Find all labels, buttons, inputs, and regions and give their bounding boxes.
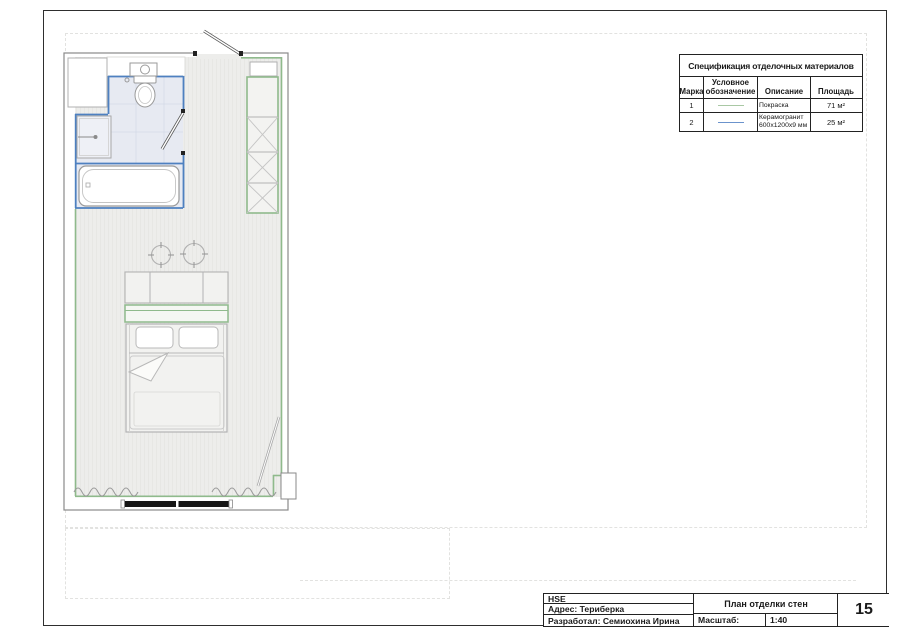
shower xyxy=(77,116,111,158)
scale-value: 1:40 xyxy=(766,614,838,626)
pillow xyxy=(179,327,218,348)
door-hinge-icon xyxy=(239,51,243,56)
tile-line-symbol xyxy=(718,122,744,123)
description-line1: Керамогранит xyxy=(759,114,803,122)
headboard-sofa xyxy=(125,272,228,303)
drawing-sheet: Спецификация отделочных материалов Марка… xyxy=(0,0,900,638)
storage-cabinet xyxy=(68,58,107,107)
col-mark: Марка xyxy=(680,77,704,98)
description-line2: 600х1200х9 мм xyxy=(759,122,807,130)
description-value: Керамогранит 600х1200х9 мм xyxy=(758,113,811,131)
organization-name: HSE xyxy=(544,594,693,604)
mark-value: 2 xyxy=(680,113,704,131)
wardrobe xyxy=(247,62,278,213)
finishing-materials-table: Спецификация отделочных материалов Марка… xyxy=(679,54,863,132)
col-area: Площадь xyxy=(811,77,861,98)
drawing-title: План отделки стен xyxy=(694,594,838,614)
entrance-door xyxy=(193,31,243,59)
scale-label: Масштаб: xyxy=(694,614,766,626)
wall-niche xyxy=(281,473,296,499)
toilet xyxy=(134,76,156,107)
spec-table-header: Марка Условное обозначение Описание Площ… xyxy=(680,77,862,99)
description-value: Покраска xyxy=(758,99,811,112)
col-description: Описание xyxy=(758,77,811,98)
area-value: 25 м² xyxy=(811,113,861,131)
title-block: HSE Адрес: Териберка Разработал: Семиохи… xyxy=(543,593,889,627)
table-row: 2 Керамогранит 600х1200х9 мм 25 м² xyxy=(680,113,862,131)
bathtub xyxy=(79,166,179,206)
double-bed xyxy=(126,324,227,432)
pillow xyxy=(136,327,173,348)
door-hinge-icon xyxy=(193,51,197,56)
paint-line-symbol xyxy=(718,105,744,106)
window xyxy=(121,500,233,508)
spec-table-title: Спецификация отделочных материалов xyxy=(680,55,862,77)
col-symbol: Условное обозначение xyxy=(704,77,758,98)
door-hinge-icon xyxy=(181,109,185,113)
table-row: 1 Покраска 71 м² xyxy=(680,99,862,113)
door-hinge-icon xyxy=(181,151,185,155)
console-shelf xyxy=(125,305,228,322)
drain-icon xyxy=(86,183,90,187)
developer-name: Разработал: Семиохина Ирина xyxy=(544,615,693,626)
mark-value: 1 xyxy=(680,99,704,112)
area-value: 71 м² xyxy=(811,99,861,112)
sheet-number: 15 xyxy=(838,594,890,626)
project-address: Адрес: Териберка xyxy=(544,604,693,615)
